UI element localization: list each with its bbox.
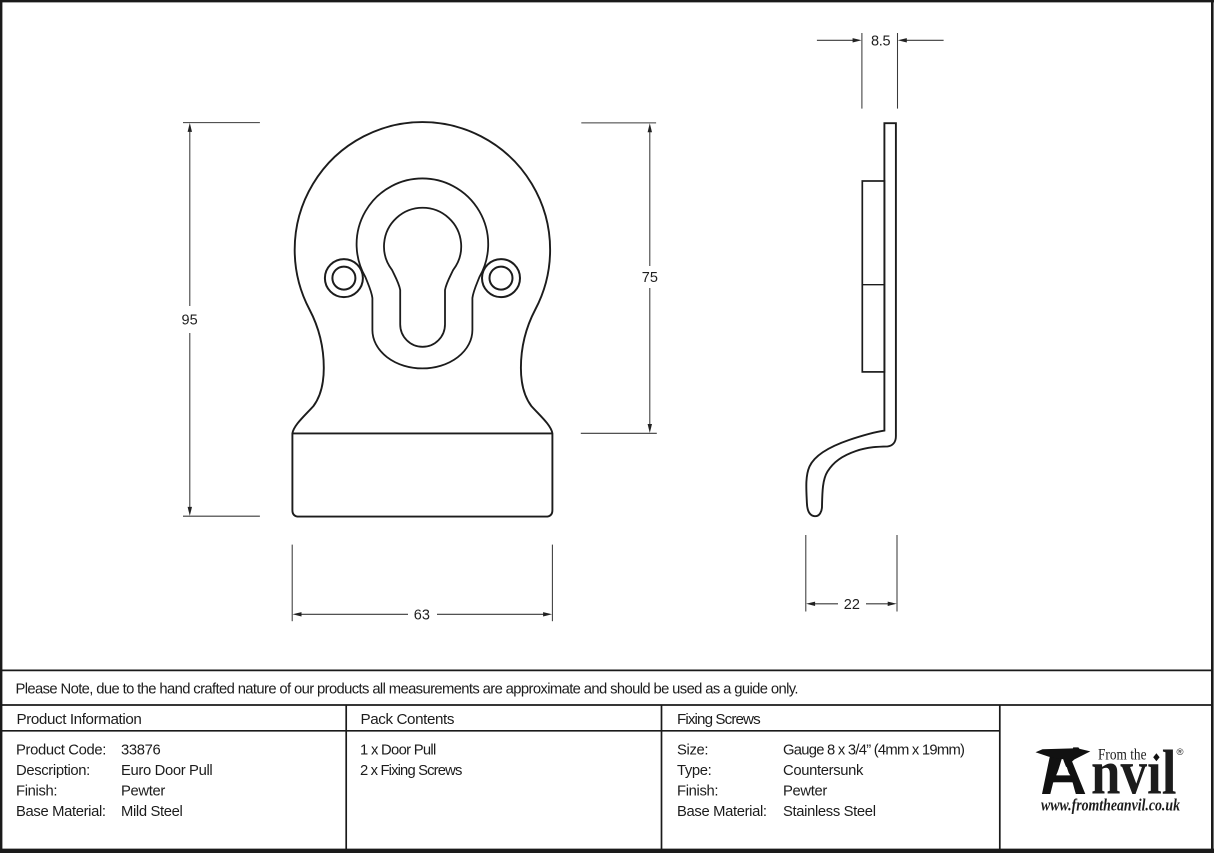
svg-text:63: 63: [414, 607, 430, 623]
svg-text:Stainless Steel: Stainless Steel: [783, 804, 876, 820]
svg-text:Pewter: Pewter: [783, 784, 827, 800]
svg-text:Fixing Screws: Fixing Screws: [677, 711, 761, 728]
svg-text:Base Material:: Base Material:: [16, 804, 106, 820]
svg-text:Description:: Description:: [16, 763, 90, 779]
svg-text:Euro Door Pull: Euro Door Pull: [121, 763, 212, 779]
svg-text:From the: From the: [1098, 747, 1147, 764]
svg-text:75: 75: [642, 270, 658, 286]
svg-text:2 x Fixing Screws: 2 x Fixing Screws: [360, 763, 462, 779]
svg-text:33876: 33876: [121, 743, 161, 759]
svg-text:Please Note, due to the hand c: Please Note, due to the hand crafted nat…: [16, 682, 798, 698]
svg-text:Product Code:: Product Code:: [16, 743, 106, 759]
svg-text:Pewter: Pewter: [121, 784, 165, 800]
svg-text:Gauge 8 x 3/4” (4mm x 19mm): Gauge 8 x 3/4” (4mm x 19mm): [783, 743, 965, 759]
svg-text:Mild Steel: Mild Steel: [121, 804, 183, 820]
svg-text:95: 95: [182, 313, 198, 329]
svg-text:www.fromtheanvil.co.uk: www.fromtheanvil.co.uk: [1041, 796, 1180, 815]
svg-text:Pack Contents: Pack Contents: [361, 711, 455, 728]
svg-text:Size:: Size:: [677, 743, 708, 759]
svg-text:8.5: 8.5: [871, 33, 890, 49]
svg-text:Product Information: Product Information: [17, 711, 142, 728]
svg-text:Type:: Type:: [677, 763, 711, 779]
svg-text:22: 22: [844, 597, 860, 613]
svg-text:1 x Door Pull: 1 x Door Pull: [360, 743, 436, 759]
svg-text:Base Material:: Base Material:: [677, 804, 767, 820]
svg-text:Countersunk: Countersunk: [783, 763, 864, 779]
svg-text:Finish:: Finish:: [16, 784, 57, 800]
svg-text:®: ®: [1177, 747, 1184, 758]
svg-text:Finish:: Finish:: [677, 784, 718, 800]
